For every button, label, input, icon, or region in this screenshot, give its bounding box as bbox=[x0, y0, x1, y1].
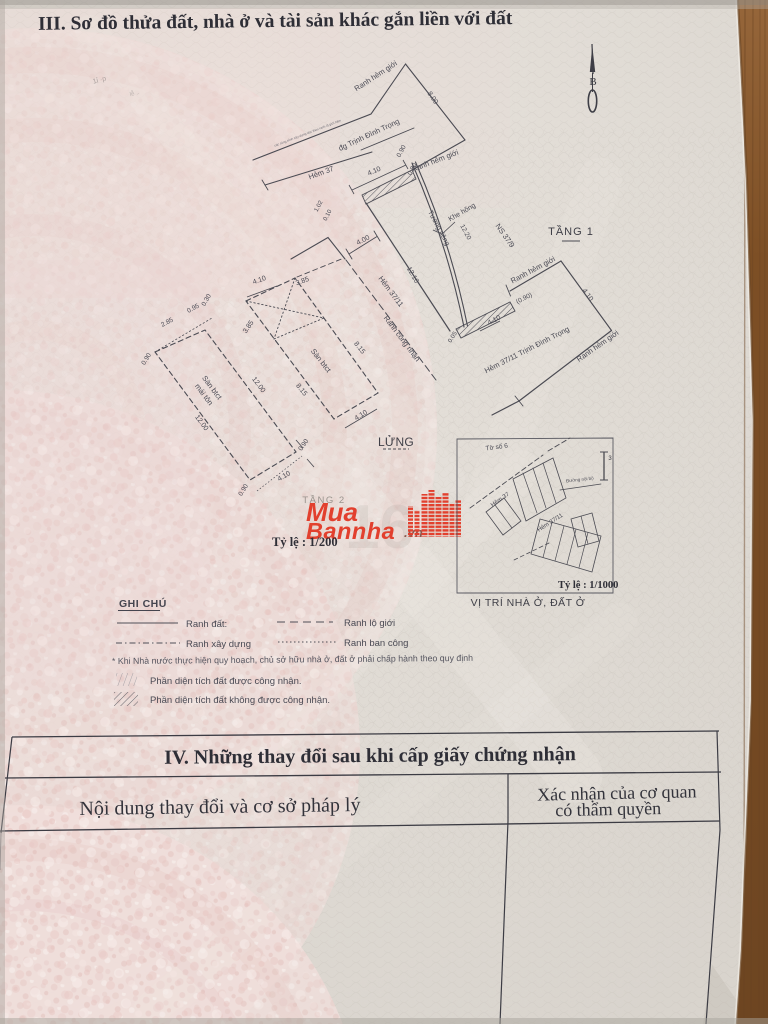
svg-text:B: B bbox=[589, 76, 596, 88]
svg-text:.vn: .vn bbox=[404, 525, 423, 540]
svg-text:LỬNG: LỬNG bbox=[378, 434, 414, 449]
svg-text:Nội dung thay đổi và cơ sở phá: Nội dung thay đổi và cơ sở pháp lý bbox=[79, 794, 360, 820]
svg-text:Phần diện tích đất được công n: Phần diện tích đất được công nhận. bbox=[150, 676, 302, 687]
svg-text:Ranh xây dựng: Ranh xây dựng bbox=[186, 639, 251, 650]
svg-text:GHI CHÚ: GHI CHÚ bbox=[119, 597, 167, 610]
svg-text:IV. Những thay đổi sau khi cấp: IV. Những thay đổi sau khi cấp giấy chứn… bbox=[164, 743, 576, 769]
svg-text:Tỷ lệ : 1/1000: Tỷ lệ : 1/1000 bbox=[558, 580, 618, 591]
svg-text:Tỷ lệ : 1/200: Tỷ lệ : 1/200 bbox=[272, 535, 338, 549]
svg-text:VỊ TRÍ NHÀ Ở, ĐẤT Ở: VỊ TRÍ NHÀ Ở, ĐẤT Ở bbox=[471, 596, 586, 609]
svg-text:có thẩm quyền: có thẩm quyền bbox=[555, 798, 661, 820]
svg-text:Ranh ban công: Ranh ban công bbox=[344, 638, 408, 649]
svg-text:Ranh lộ giới: Ranh lộ giới bbox=[344, 618, 395, 629]
svg-text:Ranh đất:: Ranh đất: bbox=[186, 619, 227, 630]
svg-text:TẦNG 1: TẦNG 1 bbox=[548, 225, 594, 238]
svg-text:Phần diện tích đất không được: Phần diện tích đất không được công nhận. bbox=[150, 695, 330, 706]
